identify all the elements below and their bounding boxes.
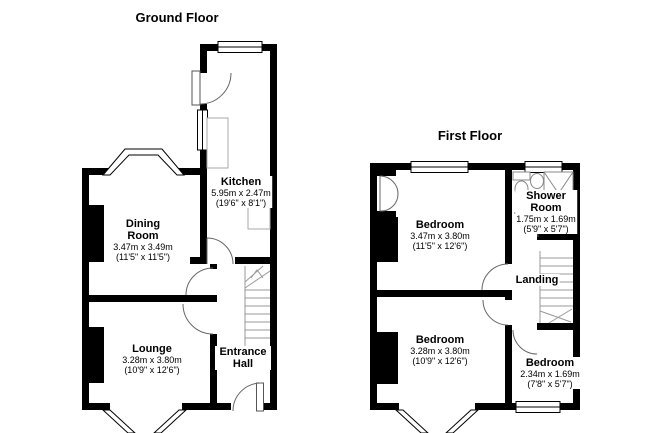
lounge-bay-window-left (103, 410, 135, 433)
room-label-dining-room: Dining Room 3.47m x 3.49m (11'5" x 11'5"… (112, 218, 174, 262)
toilet-icon (513, 172, 530, 180)
room-name: Kitchen (211, 176, 271, 188)
kitchen-door-swing (207, 238, 233, 264)
first-floor-title: First Floor (438, 128, 502, 143)
room-name: Bedroom (410, 334, 470, 346)
small-bedroom-door-swing (513, 330, 537, 354)
ground-floor-title: Ground Floor (135, 10, 218, 25)
front-door-leaf (257, 383, 264, 411)
rear-bedroom-door-swing (482, 264, 508, 290)
dining-door-swing (186, 268, 213, 295)
first-stairs (540, 251, 573, 323)
room-name: Landing (516, 274, 559, 286)
room-label-lounge: Lounge 3.28m x 3.80m (10'9" x 12'6") (121, 343, 183, 375)
room-size-metric: 3.47m x 3.80m (410, 231, 470, 241)
room-name: Entrance Hall (216, 346, 270, 370)
room-size-metric: 1.75m x 1.69m (516, 214, 576, 224)
lounge-bay-window-right (154, 410, 186, 433)
room-size-metric: 2.34m x 1.69m (520, 369, 580, 379)
room-size-metric: 3.28m x 3.80m (122, 355, 182, 365)
back-door-swing (200, 73, 231, 104)
room-label-bedroom-front: Bedroom 3.28m x 3.80m (10'9" x 12'6") (409, 334, 471, 366)
room-name: Shower Room (519, 190, 573, 214)
room-size-imperial: (11'5" x 11'5") (113, 252, 173, 262)
room-label-entrance-hall: Entrance Hall (215, 346, 271, 370)
floorplan-page: Ground Floor First Floor Kitchen 5.95m x… (0, 0, 650, 433)
basin-icon (531, 174, 544, 189)
bedroom-bay-window-left (396, 410, 428, 433)
room-size-metric: 3.28m x 3.80m (410, 346, 470, 356)
room-size-imperial: (10'9" x 12'6") (122, 365, 182, 375)
lounge-door-swing (183, 304, 213, 334)
room-size-metric: 5.95m x 2.47m (211, 188, 271, 198)
room-size-metric: 3.47m x 3.49m (113, 242, 173, 252)
kitchen-counters (207, 118, 270, 229)
room-size-imperial: (5'9" x 5'7") (516, 224, 576, 234)
room-label-bedroom-rear: Bedroom 3.47m x 3.80m (11'5" x 12'6") (409, 219, 471, 251)
room-label-bedroom-small: Bedroom 2.34m x 1.69m (7'8" x 5'7") (519, 357, 581, 389)
front-bedroom-door-swing (483, 300, 508, 325)
back-door-leaf (192, 71, 200, 105)
room-size-imperial: (10'9" x 12'6") (410, 356, 470, 366)
bedroom-bay-window-right (446, 410, 478, 433)
cupboard-doors (380, 176, 398, 211)
dining-bay-window (103, 149, 184, 175)
ground-stairs (245, 266, 270, 348)
room-label-landing: Landing (515, 274, 560, 286)
room-label-kitchen: Kitchen 5.95m x 2.47m (19'6" x 8'1") (210, 176, 272, 208)
first-chimney-breasts (377, 217, 398, 384)
room-name: Dining Room (116, 218, 170, 242)
room-label-shower-room: Shower Room 1.75m x 1.69m (5'9" x 5'7") (515, 190, 577, 234)
room-size-imperial: (19'6" x 8'1") (211, 198, 271, 208)
room-name: Bedroom (520, 357, 580, 369)
room-size-imperial: (7'8" x 5'7") (520, 379, 580, 389)
room-name: Bedroom (410, 219, 470, 231)
room-size-imperial: (11'5" x 12'6") (410, 241, 470, 251)
room-name: Lounge (122, 343, 182, 355)
